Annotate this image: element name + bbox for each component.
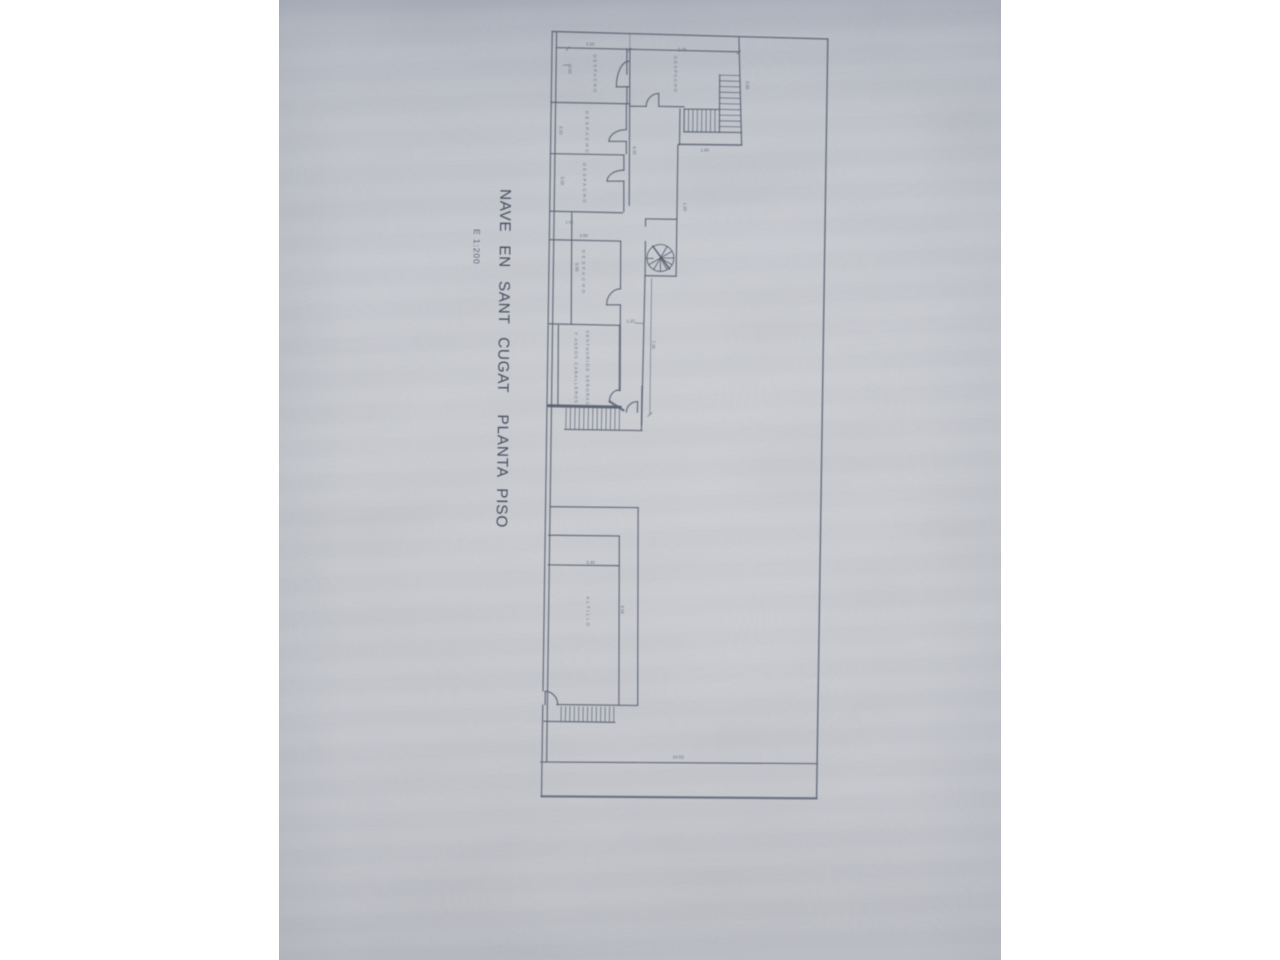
svg-text:3.10: 3.10 bbox=[560, 177, 565, 186]
svg-text:1.80: 1.80 bbox=[701, 148, 710, 153]
svg-text:1.10: 1.10 bbox=[626, 319, 635, 324]
svg-text:4.20: 4.20 bbox=[586, 42, 595, 47]
svg-text:5.40: 5.40 bbox=[587, 560, 596, 565]
svg-text:NAVE EN SANT CUGAT: NAVE EN SANT CUGAT bbox=[494, 189, 513, 393]
svg-text:3.50: 3.50 bbox=[568, 65, 573, 74]
svg-text:3.10: 3.10 bbox=[559, 126, 564, 135]
svg-text:10.52: 10.52 bbox=[673, 755, 685, 760]
svg-text:Y ASEOS CABALLEROS: Y ASEOS CABALLEROS bbox=[573, 332, 578, 403]
svg-text:1.50: 1.50 bbox=[566, 220, 575, 225]
svg-text:3.00: 3.00 bbox=[745, 81, 750, 90]
svg-text:5.00: 5.00 bbox=[575, 263, 580, 272]
svg-text:5.30: 5.30 bbox=[678, 47, 687, 52]
svg-text:9.35: 9.35 bbox=[632, 146, 637, 155]
svg-text:E 1:200: E 1:200 bbox=[472, 229, 482, 265]
svg-text:PLANTA PISO: PLANTA PISO bbox=[493, 414, 511, 528]
svg-text:4.50: 4.50 bbox=[580, 233, 589, 238]
svg-text:ALTILLO: ALTILLO bbox=[585, 596, 590, 626]
svg-text:VESTUARIOS SEÑORAS: VESTUARIOS SEÑORAS bbox=[585, 330, 590, 404]
svg-text:9.66: 9.66 bbox=[620, 606, 625, 615]
svg-text:1.20: 1.20 bbox=[683, 203, 688, 212]
svg-text:7.35: 7.35 bbox=[651, 341, 656, 350]
